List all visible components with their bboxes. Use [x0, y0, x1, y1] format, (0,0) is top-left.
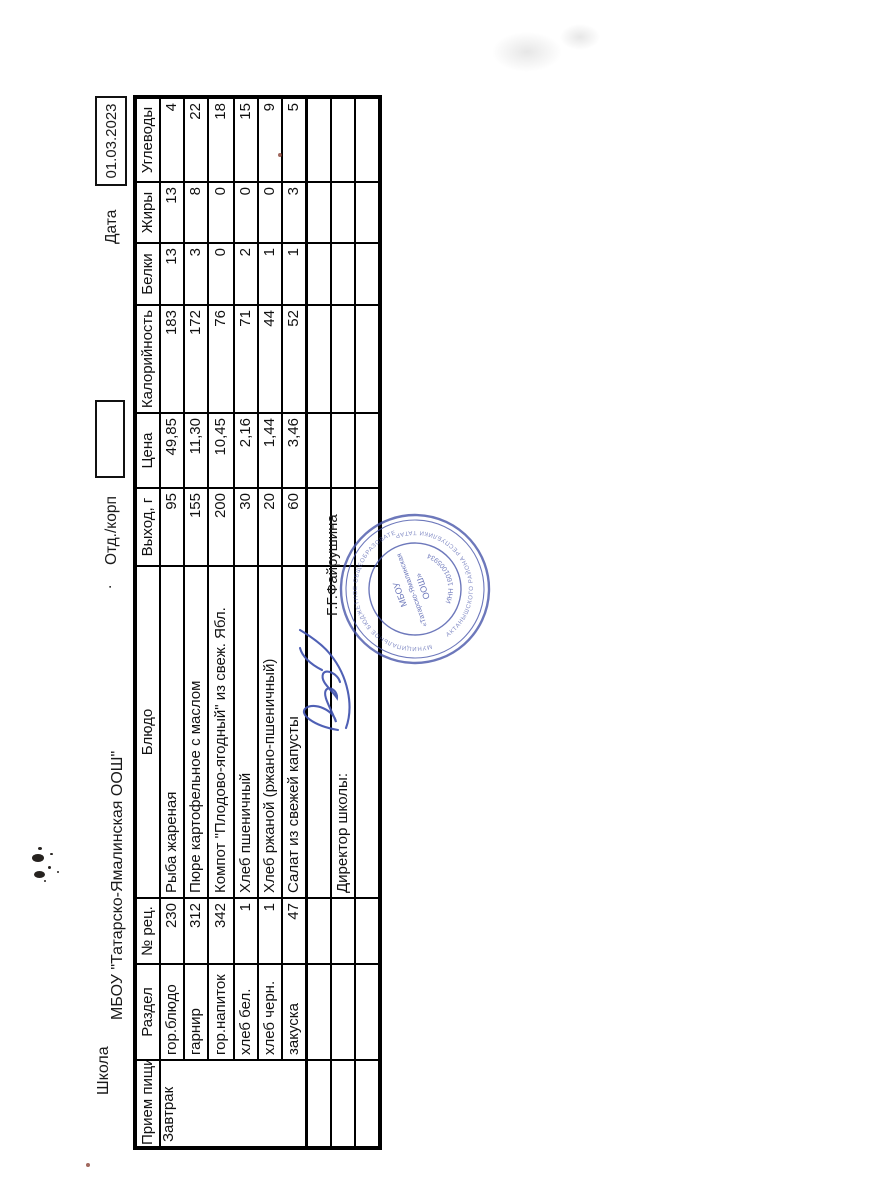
col-kcal: Калорийность [135, 305, 160, 413]
razdel-cell: закуска [282, 964, 307, 1060]
meal-cell: Завтрак [160, 1060, 307, 1148]
kcal-cell: 71 [234, 305, 258, 413]
dish-cell: Пюре картофельное с маслом [184, 566, 208, 898]
col-fat: Жиры [135, 182, 160, 243]
dept-value-box [95, 400, 125, 478]
rec-cell: 312 [184, 898, 208, 964]
school-label: Школа [95, 1046, 113, 1095]
date-label: Дата [103, 210, 121, 244]
signature-ink [292, 620, 354, 740]
col-out: Выход, г [135, 488, 160, 566]
date-value-box: 01.03.2023 [95, 96, 127, 186]
out-cell: 200 [208, 488, 234, 566]
fat-cell: 8 [184, 182, 208, 243]
out-cell: 60 [282, 488, 307, 566]
table-row: хлеб черн. 1 Хлеб ржаной (ржано-пшеничны… [258, 97, 282, 1148]
school-name: МБОУ "Татарско-Ямалинская ООШ" [109, 751, 127, 1020]
dish-cell: Хлеб ржаной (ржано-пшеничный) [258, 566, 282, 898]
scan-smudge [492, 32, 562, 72]
table-row: хлеб бел. 1 Хлеб пшеничный 30 2,16 71 2 … [234, 97, 258, 1148]
col-rec: № рец. [135, 898, 160, 964]
price-cell: 49,85 [160, 413, 184, 488]
dish-cell: Рыба жареная [160, 566, 184, 898]
kcal-cell: 76 [208, 305, 234, 413]
carbs-cell: 5 [282, 97, 307, 182]
table-header-row: Прием пищи Раздел № рец. Блюдо Выход, г … [135, 97, 160, 1148]
fat-cell: 0 [258, 182, 282, 243]
price-cell: 10,45 [208, 413, 234, 488]
razdel-cell: гарнир [184, 964, 208, 1060]
fat-cell: 0 [208, 182, 234, 243]
table-row: Завтрак гор.блюдо 230 Рыба жареная 95 49… [160, 97, 184, 1148]
red-speck [86, 1163, 90, 1167]
price-cell: 11,30 [184, 413, 208, 488]
red-speck [278, 153, 282, 157]
rec-cell: 47 [282, 898, 307, 964]
protein-cell: 0 [208, 243, 234, 305]
carbs-cell: 9 [258, 97, 282, 182]
razdel-cell: хлеб черн. [258, 964, 282, 1060]
kcal-cell: 183 [160, 305, 184, 413]
table-row: гарнир 312 Пюре картофельное с маслом 15… [184, 97, 208, 1148]
price-cell: 3,46 [282, 413, 307, 488]
kcal-cell: 172 [184, 305, 208, 413]
scanned-page: Школа МБОУ "Татарско-Ямалинская ООШ" . О… [0, 0, 872, 1200]
carbs-cell: 22 [184, 97, 208, 182]
rec-cell: 230 [160, 898, 184, 964]
out-cell: 155 [184, 488, 208, 566]
dept-label: Отд./корп [103, 496, 121, 565]
separator-dot: . [98, 585, 116, 589]
fat-cell: 0 [234, 182, 258, 243]
col-meal: Прием пищи [135, 1060, 160, 1148]
protein-cell: 3 [184, 243, 208, 305]
protein-cell: 2 [234, 243, 258, 305]
rotated-document: Школа МБОУ "Татарско-Ямалинская ООШ" . О… [0, 0, 872, 1200]
col-razdel: Раздел [135, 964, 160, 1060]
kcal-cell: 44 [258, 305, 282, 413]
col-protein: Белки [135, 243, 160, 305]
kcal-cell: 52 [282, 305, 307, 413]
protein-cell: 1 [258, 243, 282, 305]
out-cell: 95 [160, 488, 184, 566]
protein-cell: 13 [160, 243, 184, 305]
carbs-cell: 4 [160, 97, 184, 182]
col-price: Цена [135, 413, 160, 488]
table-row: гор.напиток 342 Компот "Плодово-ягодный"… [208, 97, 234, 1148]
carbs-cell: 15 [234, 97, 258, 182]
price-cell: 2,16 [234, 413, 258, 488]
dish-cell: Компот "Плодово-ягодный" из свеж. Ябл. [208, 566, 234, 898]
fat-cell: 13 [160, 182, 184, 243]
rec-cell: 1 [234, 898, 258, 964]
svg-text:ИНН 1601005934: ИНН 1601005934 [424, 547, 462, 608]
scan-smudge [560, 24, 600, 50]
rec-cell: 1 [258, 898, 282, 964]
price-cell: 1,44 [258, 413, 282, 488]
col-carbs: Углеводы [135, 97, 160, 182]
stamp-inn-text: ИНН 1601005934 [424, 547, 462, 608]
out-cell: 20 [258, 488, 282, 566]
carbs-cell: 18 [208, 97, 234, 182]
razdel-cell: хлеб бел. [234, 964, 258, 1060]
protein-cell: 1 [282, 243, 307, 305]
razdel-cell: гор.блюдо [160, 964, 184, 1060]
fat-cell: 3 [282, 182, 307, 243]
out-cell: 30 [234, 488, 258, 566]
razdel-cell: гор.напиток [208, 964, 234, 1060]
dish-cell: Хлеб пшеничный [234, 566, 258, 898]
col-dish: Блюдо [135, 566, 160, 898]
rec-cell: 342 [208, 898, 234, 964]
